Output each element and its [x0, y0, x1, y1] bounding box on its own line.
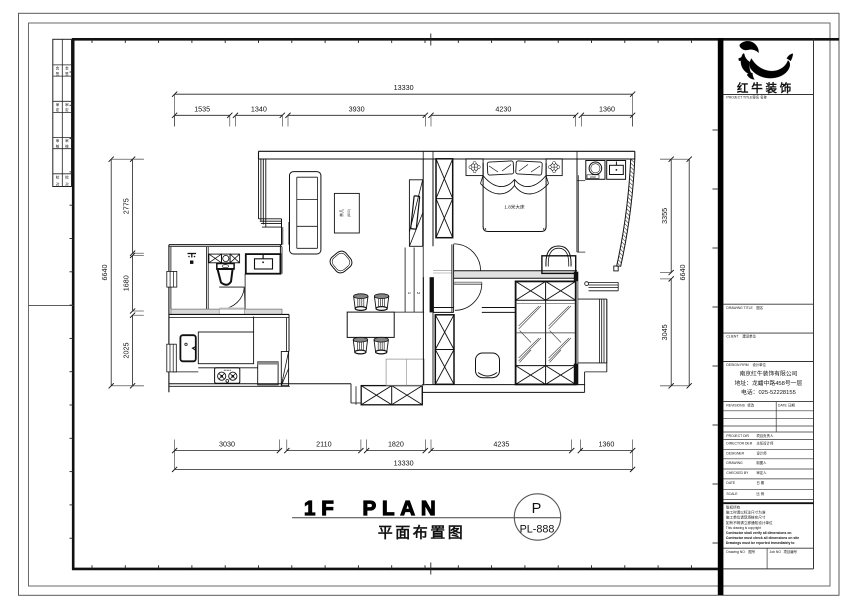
svg-text:建设单位: 建设单位 — [742, 334, 756, 339]
svg-text:审: 审 — [56, 138, 60, 143]
svg-text:1360: 1360 — [599, 104, 615, 113]
svg-text:PROJECT DIR: PROJECT DIR — [726, 434, 749, 438]
svg-text:红牛装饰: 红牛装饰 — [737, 81, 794, 95]
svg-text:4235: 4235 — [493, 440, 509, 449]
svg-text:审: 审 — [56, 102, 60, 107]
svg-text:案名 名称: 案名 名称 — [752, 95, 767, 100]
svg-text:施工时请以标注尺寸为准: 施工时请以标注尺寸为准 — [726, 510, 766, 515]
svg-text:This drawing is copyright: This drawing is copyright — [726, 526, 761, 530]
svg-text:签: 签 — [65, 71, 69, 76]
svg-text:日 期: 日 期 — [756, 480, 764, 485]
svg-text:PL-888: PL-888 — [520, 524, 555, 536]
svg-text:对: 对 — [56, 181, 60, 186]
svg-text:审定人: 审定人 — [756, 470, 767, 475]
svg-text:P: P — [532, 501, 542, 517]
svg-text:DIRECTOR DER: DIRECTOR DER — [726, 442, 752, 446]
svg-text:设计单位: 设计单位 — [752, 362, 766, 367]
svg-text:3045: 3045 — [660, 324, 669, 340]
svg-text:2110: 2110 — [316, 440, 331, 449]
svg-text:审: 审 — [65, 138, 69, 143]
svg-text:定: 定 — [56, 107, 60, 112]
svg-text:修改: 修改 — [747, 403, 754, 408]
svg-text:比 例: 比 例 — [756, 491, 764, 496]
svg-text:主任设计师: 主任设计师 — [756, 441, 774, 446]
svg-text:对: 对 — [65, 181, 69, 186]
svg-text:南京红牛装饰有限公司: 南京红牛装饰有限公司 — [739, 370, 797, 378]
svg-text:DRAWING TITLE: DRAWING TITLE — [726, 306, 753, 310]
svg-text:签: 签 — [56, 71, 60, 76]
svg-text:13330: 13330 — [394, 458, 414, 467]
svg-text:DATE: DATE — [778, 404, 788, 408]
svg-text:6640: 6640 — [100, 265, 109, 281]
svg-text:CHECKED BY: CHECKED BY — [726, 471, 749, 475]
svg-text:3030: 3030 — [219, 440, 235, 449]
svg-text:版权所有: 版权所有 — [726, 505, 741, 510]
svg-text:W&D: W&D — [590, 175, 596, 179]
svg-text:1340: 1340 — [251, 104, 267, 113]
svg-text:定: 定 — [65, 107, 69, 112]
svg-text:4230: 4230 — [495, 104, 511, 113]
svg-text:核: 核 — [56, 144, 60, 149]
svg-text:会: 会 — [56, 66, 60, 71]
svg-text:电话：025-52228155: 电话：025-52228155 — [741, 388, 796, 396]
svg-text:项目编号: 项目编号 — [784, 549, 798, 554]
svg-text:1535: 1535 — [194, 104, 210, 113]
svg-text:设计师: 设计师 — [756, 451, 767, 456]
svg-text:DRAWING: DRAWING — [726, 461, 743, 465]
svg-text:Drawing NO: Drawing NO — [726, 550, 745, 554]
svg-text:日期: 日期 — [788, 403, 795, 408]
svg-text:2025: 2025 — [121, 343, 130, 359]
svg-text:Drawings must be reported imme: Drawings must be reported immediately to — [726, 541, 795, 545]
svg-text:13330: 13330 — [394, 83, 414, 92]
svg-text:1820: 1820 — [388, 440, 404, 449]
svg-text:项目负责人: 项目负责人 — [756, 433, 774, 438]
svg-text:茶几: 茶几 — [338, 209, 344, 217]
svg-text:6640: 6640 — [678, 265, 687, 281]
svg-text:制图人: 制图人 — [756, 460, 767, 465]
svg-text:DESIGNER: DESIGNER — [726, 452, 744, 456]
svg-text:1.8米大床: 1.8米大床 — [504, 204, 525, 211]
svg-text:平面布置图: 平面布置图 — [378, 524, 466, 542]
svg-text:2775: 2775 — [121, 198, 130, 214]
svg-text:REVISIONS: REVISIONS — [726, 404, 745, 408]
svg-text:施工单位请现场核实尺寸: 施工单位请现场核实尺寸 — [726, 515, 766, 520]
svg-text:DATE: DATE — [726, 481, 736, 485]
svg-text:Job NO: Job NO — [770, 550, 782, 554]
svg-text:如有不明请立即通知设计单位: 如有不明请立即通知设计单位 — [726, 520, 773, 525]
svg-text:Contractor shall verify all di: Contractor shall verify all dimensions o… — [726, 531, 792, 535]
svg-text:校: 校 — [56, 174, 60, 179]
svg-text:1360: 1360 — [598, 440, 614, 449]
svg-text:PROJECT TITLE: PROJECT TITLE — [726, 96, 753, 100]
svg-text:核: 核 — [65, 144, 69, 149]
svg-text:图名: 图名 — [756, 305, 763, 310]
svg-text:1F PLAN: 1F PLAN — [304, 497, 442, 520]
svg-text:(600): (600) — [347, 209, 351, 217]
svg-text:图号: 图号 — [748, 549, 755, 554]
svg-text:地址：龙蟠中路458号一层: 地址：龙蟠中路458号一层 — [735, 379, 803, 387]
svg-text:校: 校 — [65, 174, 69, 179]
svg-text:SCALE: SCALE — [726, 492, 738, 496]
svg-text:3355: 3355 — [660, 208, 669, 224]
svg-text:会: 会 — [65, 66, 69, 71]
svg-text:DESIGN FIRM: DESIGN FIRM — [726, 363, 748, 367]
svg-text:Contractor must check all dime: Contractor must check all dimensions on … — [726, 536, 799, 540]
svg-text:1680: 1680 — [121, 275, 130, 291]
svg-text:审: 审 — [65, 102, 69, 107]
svg-text:3930: 3930 — [349, 104, 365, 113]
svg-text:CLIENT: CLIENT — [726, 335, 738, 339]
